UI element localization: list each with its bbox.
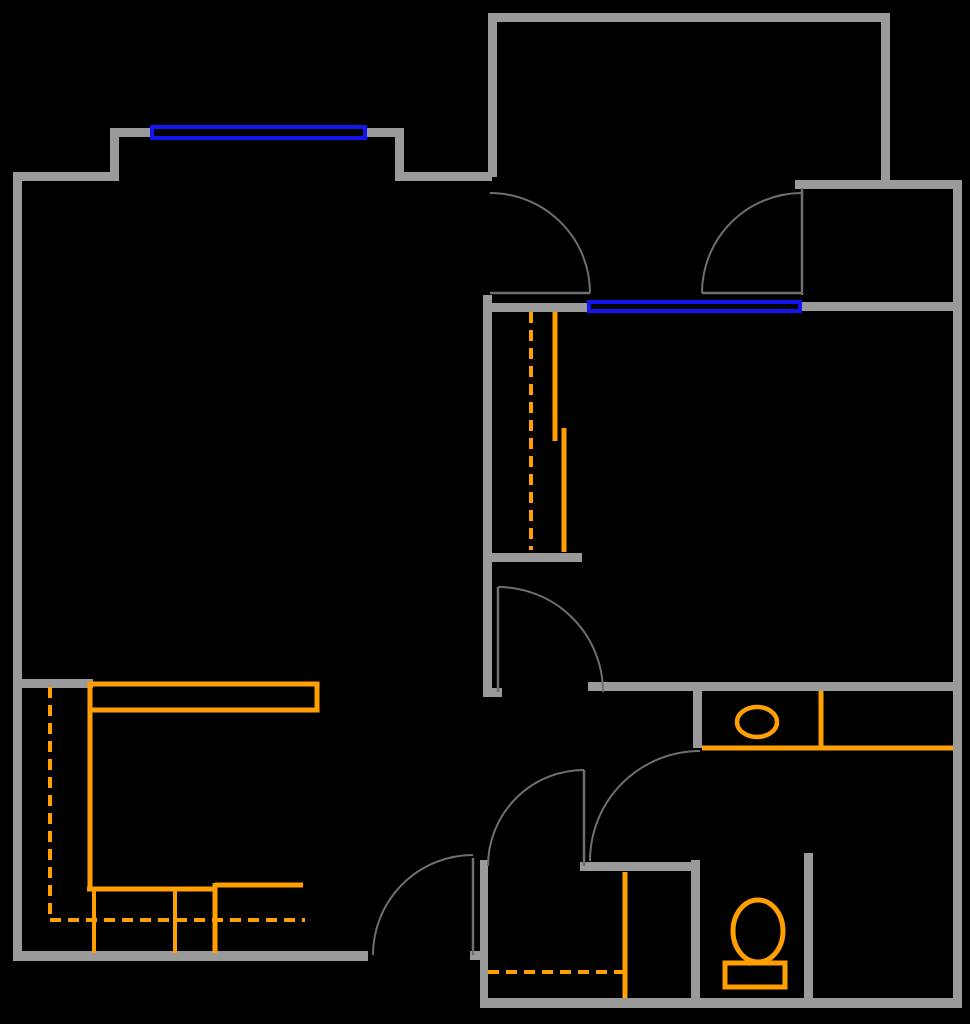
wall-wc-left [691, 860, 700, 1000]
wall-entry-right [881, 13, 890, 181]
floor-plan [0, 0, 970, 1024]
wall-bay-top-left [110, 128, 150, 137]
wall-bath-stub [693, 691, 702, 748]
bathroom-door-swing-arc [590, 751, 700, 861]
living-room-door-swing-arc [490, 193, 590, 293]
wall-closet-bottom [488, 553, 582, 562]
kitchen-counter-top [90, 684, 317, 710]
hall-door-swing-arc [488, 770, 584, 866]
bathroom-sink [737, 707, 777, 737]
window-hall [589, 302, 800, 311]
toilet-bowl [733, 900, 783, 962]
wall-entry-top [488, 13, 890, 22]
wall-kitchen-stub [22, 679, 93, 688]
wall-top-mid [402, 172, 492, 181]
wall-mid-west [483, 303, 588, 312]
window-living-room [152, 127, 365, 138]
wall-bottom-exterior [480, 998, 962, 1008]
vestibule-door-swing-arc [702, 193, 802, 293]
kitchen-door-swing-arc [373, 855, 473, 955]
bedroom-door-swing-arc [498, 587, 603, 692]
wall-wc-right [804, 853, 813, 1000]
wall-entry-left [488, 13, 497, 177]
wall-top-left [13, 172, 110, 181]
wall-upper-right [795, 180, 962, 189]
wall-bedroom-left [483, 295, 492, 692]
wall-kitchen-bottom [13, 951, 368, 961]
wall-right-exterior [953, 180, 962, 1008]
wall-bedroom-bottom [588, 682, 953, 691]
wall-hall-south [580, 862, 700, 871]
floor-plan-page [0, 0, 970, 1024]
wall-laundry-left [480, 860, 488, 1008]
wall-left-exterior [13, 172, 22, 961]
wall-mid-east [802, 302, 953, 311]
toilet-tank [725, 963, 785, 987]
